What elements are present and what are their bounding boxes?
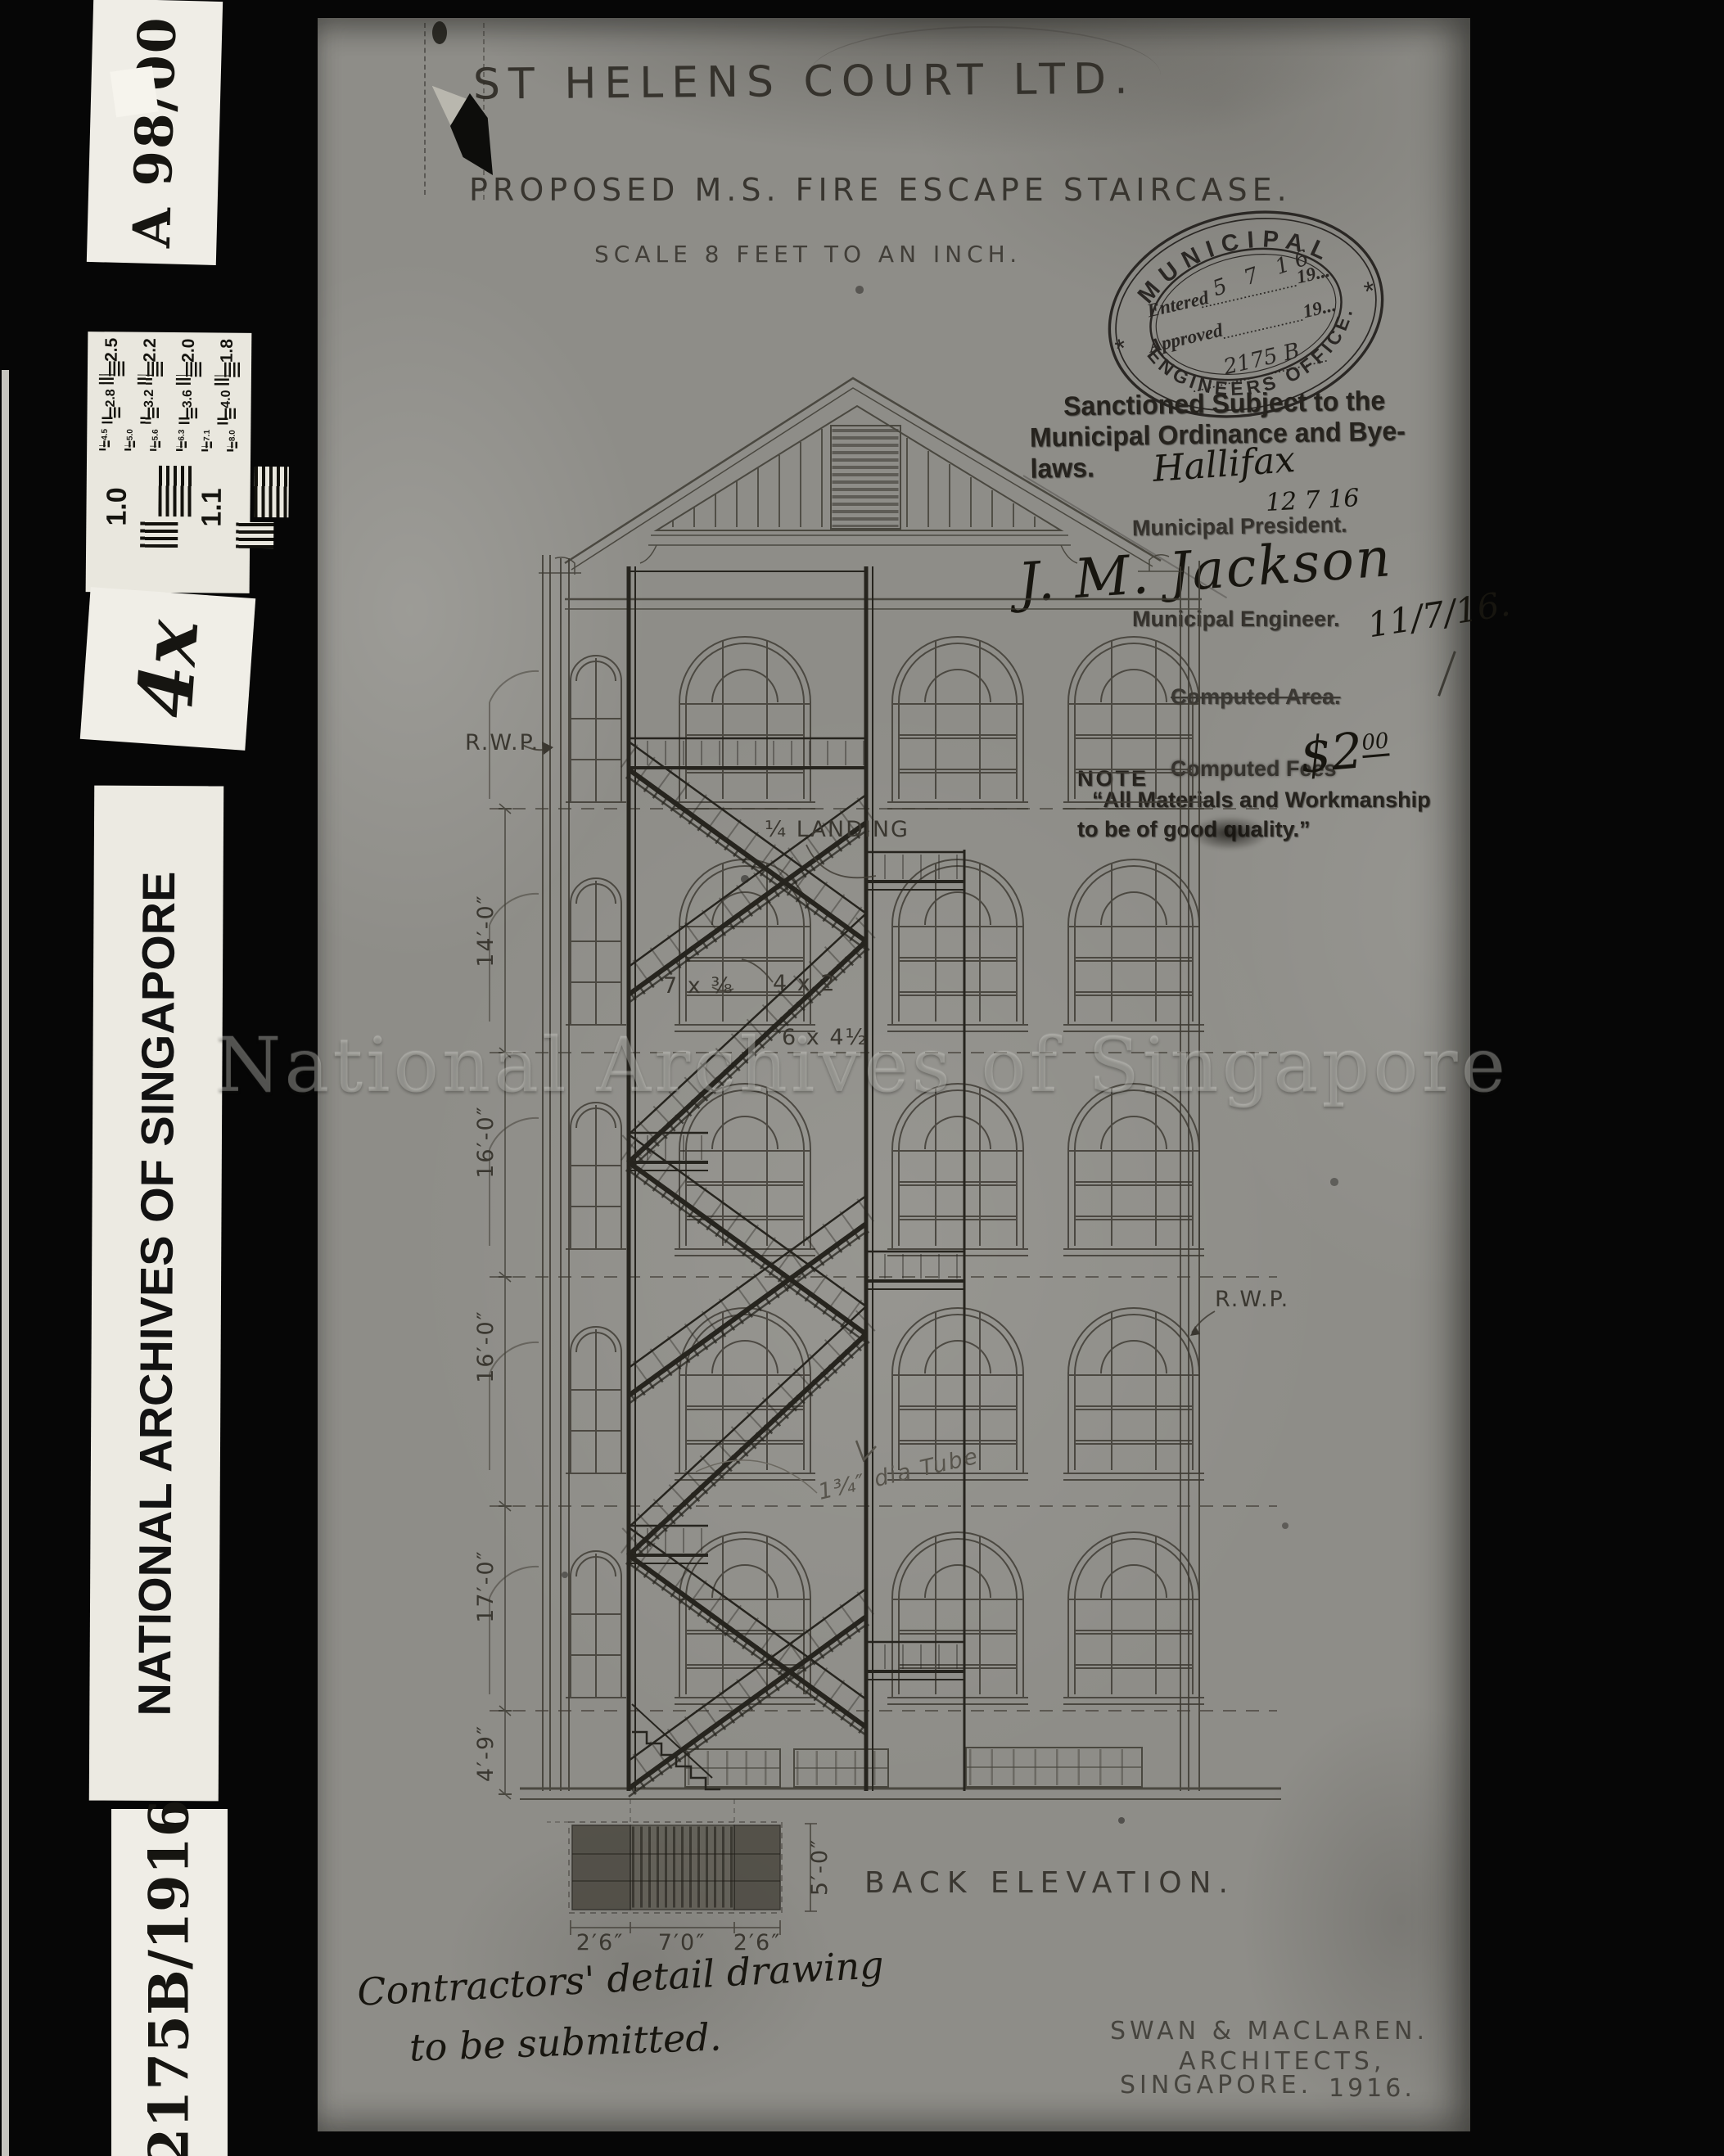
bar-target	[140, 408, 160, 424]
magnification-label: 4x	[80, 587, 255, 751]
test-chart-row1: 2.5 2.2 2.0 1.8	[93, 340, 246, 386]
bar-target	[124, 441, 136, 451]
bar-target	[176, 441, 187, 451]
dimension-lines	[499, 804, 512, 1799]
bar-target	[140, 466, 193, 548]
bar-target	[102, 407, 121, 423]
bar-target	[150, 441, 161, 451]
arched-windows	[490, 637, 1204, 1704]
reference-number-label: 2175B/1916	[111, 1809, 228, 2156]
plan-dimension: 5′-0″	[807, 1838, 833, 1896]
chart-number: 3.6	[181, 390, 196, 408]
member-size-label: 4 x 2	[773, 971, 837, 996]
rwp-label-right: R.W.P.	[1215, 1287, 1289, 1312]
member-size-label: 7 x ⅜	[663, 973, 734, 999]
microfilm-scan: A 98/00 2.5 2.2 2.0 1.8 2.8 3.2 3.6 4.0 …	[0, 0, 1724, 2156]
bar-target	[99, 440, 111, 450]
archive-name-text: NATIONAL ARCHIVES OF SINGAPORE	[128, 871, 185, 1716]
chart-number: 5.0	[126, 429, 135, 440]
stair-flight	[629, 1196, 866, 1404]
dust-specks	[318, 18, 321, 21]
chart-number: 4.0	[219, 390, 234, 408]
dimension-label: 16′-0″	[473, 1105, 499, 1179]
archive-name-label: NATIONAL ARCHIVES OF SINGAPORE	[89, 786, 223, 1802]
bar-target	[217, 408, 237, 425]
quarter-landing	[866, 1642, 964, 1680]
engineer-date: 11/7/16.	[1365, 584, 1513, 646]
test-chart-row2: 2.8 3.2 3.6 4.0	[92, 390, 246, 425]
plan-dimension: 2′6″	[576, 1930, 625, 1955]
building-outline	[520, 555, 1281, 1799]
test-chart-large-targets: 1.0 1.1	[91, 457, 246, 548]
pencil-mark	[1437, 651, 1456, 697]
bar-target	[227, 442, 238, 452]
drawing-sheet: ST HELENS COURT LTD. PROPOSED M.S. FIRE …	[318, 18, 1470, 2131]
chart-number: 6.3	[177, 430, 186, 441]
rwp-label-left: R.W.P.	[465, 730, 539, 756]
drawing-caption: BACK ELEVATION.	[864, 1866, 1235, 1900]
scale-note: SCALE 8 FEET TO AN INCH.	[594, 241, 1061, 268]
roof-gable	[539, 378, 1183, 575]
ground-vents	[685, 1748, 1142, 1787]
staircase-plan	[547, 1799, 817, 1935]
chart-number: 1.8	[218, 339, 237, 363]
chart-number: 5.6	[151, 429, 160, 440]
bar-target	[201, 441, 213, 451]
chart-number: 2.0	[179, 339, 199, 363]
chart-number: 8.0	[228, 430, 237, 441]
chart-number: 2.2	[141, 338, 160, 362]
chart-number: 1.0	[101, 487, 133, 526]
dimension-label: 14′-0″	[473, 894, 499, 967]
catalog-label-text: A 98/00	[121, 15, 187, 248]
dimension-label: 4′-9″	[473, 1725, 499, 1782]
chart-number: 4.5	[100, 429, 109, 440]
fold-line	[424, 23, 426, 195]
member-size-label: 6 x 4½	[782, 1025, 869, 1050]
architect-year: 1916.	[1329, 2074, 1415, 2103]
contractor-note-line2: to be submitted.	[408, 2014, 722, 2069]
chart-number: 2.8	[104, 389, 119, 407]
bar-target	[178, 408, 198, 424]
architect-firm: SWAN & MACLAREN.	[1110, 2017, 1428, 2045]
dimension-label: 16′-0″	[473, 1310, 499, 1383]
chart-number: 1.1	[196, 488, 228, 527]
catalog-label: A 98/00	[87, 0, 223, 265]
bar-target	[137, 362, 163, 385]
sheet-title: ST HELENS COURT LTD.	[473, 54, 1161, 109]
elevation-drawing: 14′-0″ 16′-0″ 16′-0″ 17′-0″ 4′-9″ R.W.P.…	[442, 352, 1375, 1956]
quarter-landing	[866, 1252, 964, 1289]
bar-target	[98, 361, 124, 384]
bar-target	[214, 362, 240, 385]
resolution-test-chart: 2.5 2.2 2.0 1.8 2.8 3.2 3.6 4.0 4.5 5.0 …	[86, 332, 252, 593]
chart-number: 3.2	[142, 390, 157, 408]
chart-number: 7.1	[203, 430, 212, 441]
bar-target	[236, 467, 289, 549]
reference-number-text: 2175B/1916	[138, 1799, 201, 2156]
film-edge-line	[2, 370, 9, 2156]
bar-target	[175, 362, 201, 385]
chart-number: 2.5	[102, 338, 122, 362]
sheet-subtitle: PROPOSED M.S. FIRE ESCAPE STAIRCASE.	[469, 172, 1296, 208]
construction-lines	[490, 809, 1277, 1711]
quarter-landing-label: ¼ LANDING	[765, 817, 909, 842]
test-chart-row3: 4.5 5.0 5.6 6.3 7.1 8.0	[92, 430, 246, 452]
magnification-text: 4x	[120, 617, 215, 720]
blemish	[432, 21, 447, 44]
architect-city: SINGAPORE.	[1120, 2071, 1312, 2100]
label-chip	[110, 66, 158, 118]
dimension-label: 17′-0″	[473, 1549, 499, 1623]
